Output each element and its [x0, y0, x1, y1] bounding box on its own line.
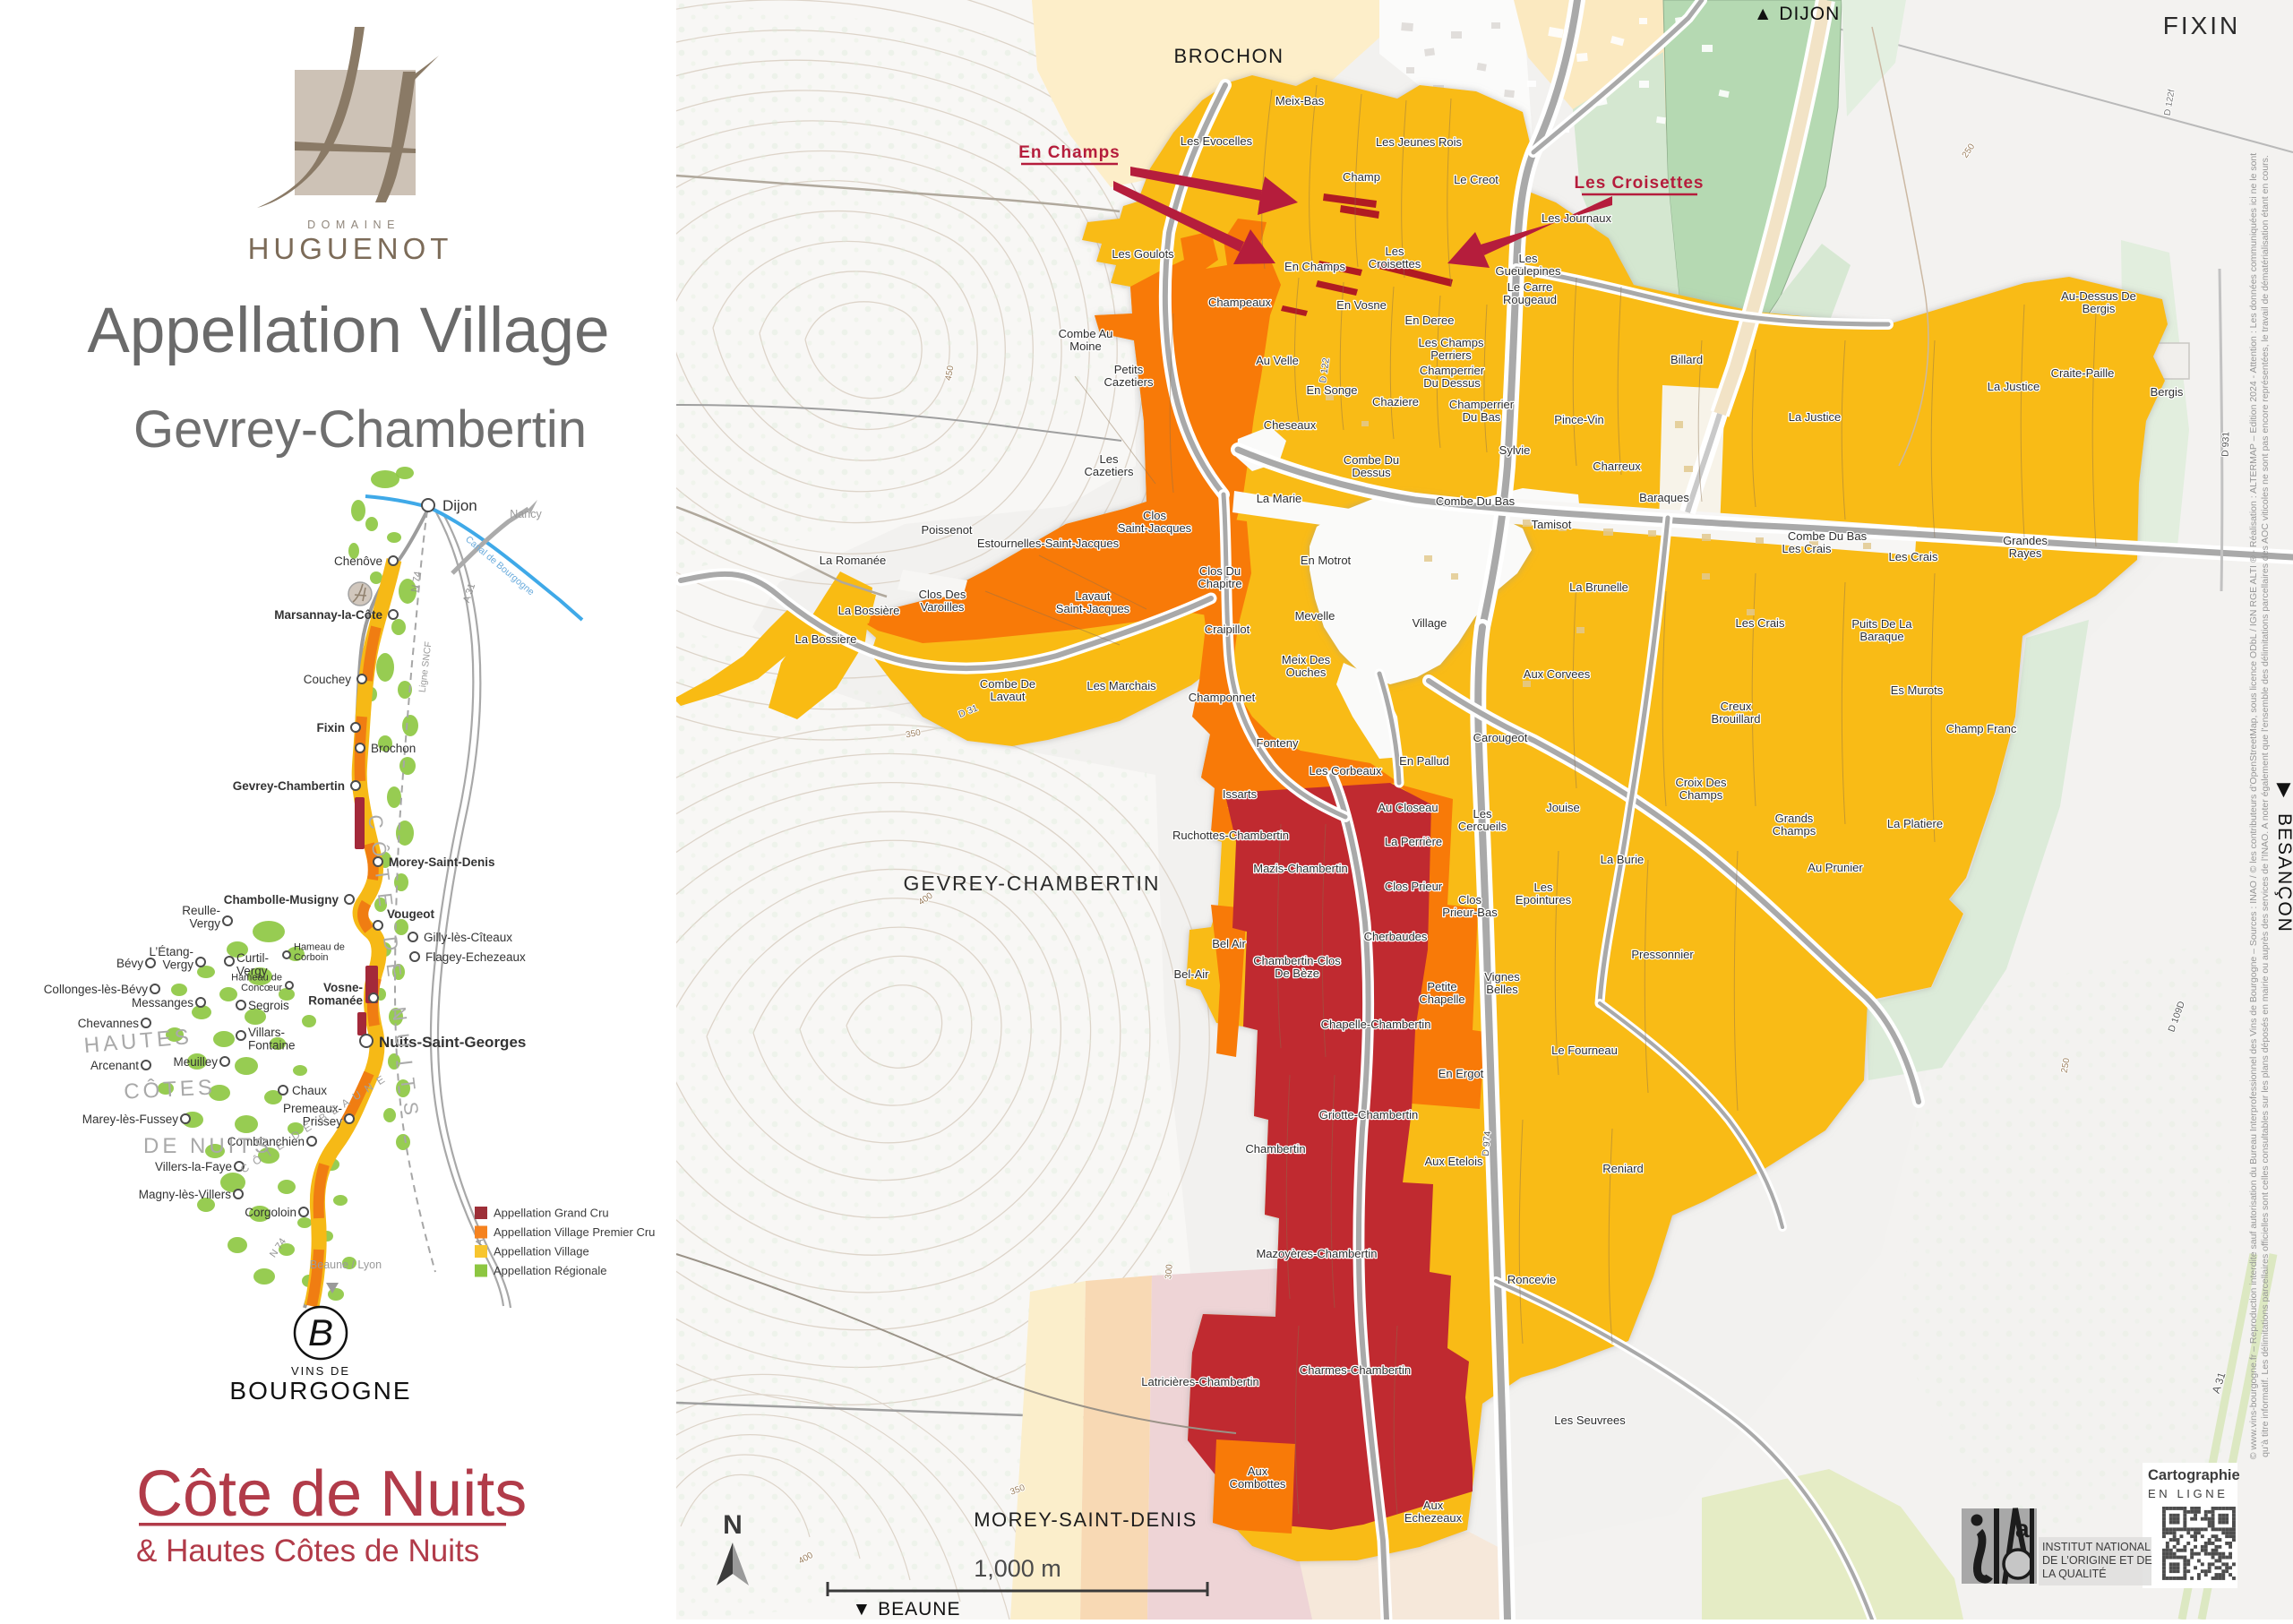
svg-text:Combe Du Bas: Combe Du Bas	[1436, 494, 1516, 508]
svg-text:Arcenant: Arcenant	[90, 1059, 139, 1072]
svg-text:GrandesRayes: GrandesRayes	[2003, 534, 2048, 560]
svg-text:D 974: D 974	[1481, 1130, 1493, 1156]
svg-text:Messanges: Messanges	[132, 996, 193, 1010]
svg-text:INSTITUT NATIONAL: INSTITUT NATIONAL	[2042, 1541, 2151, 1553]
svg-text:Chapelle-Chambertin: Chapelle-Chambertin	[1321, 1018, 1431, 1031]
svg-text:Les Crais: Les Crais	[1782, 542, 1832, 555]
svg-text:Croix DesChamps: Croix DesChamps	[1675, 776, 1727, 802]
svg-text:Carougeot: Carougeot	[1473, 731, 1528, 744]
svg-text:Marsannay-la-Côte: Marsannay-la-Côte	[274, 608, 382, 622]
svg-text:Dijon: Dijon	[442, 497, 477, 514]
svg-text:Couchey: Couchey	[304, 673, 352, 686]
svg-text:▶ BESANÇON: ▶ BESANÇON	[2274, 783, 2293, 933]
svg-text:ChamperrierDu Dessus: ChamperrierDu Dessus	[1420, 364, 1485, 390]
svg-text:VINS DE: VINS DE	[291, 1364, 350, 1378]
svg-text:Chaux: Chaux	[292, 1084, 327, 1097]
svg-text:Mazoyères-Chambertin: Mazoyères-Chambertin	[1256, 1247, 1377, 1260]
svg-text:Le CarreRougeaud: Le CarreRougeaud	[1503, 280, 1557, 306]
svg-text:En Vosne: En Vosne	[1336, 298, 1387, 312]
svg-text:Clos DesVaroilles: Clos DesVaroilles	[919, 588, 966, 614]
svg-text:Poissenot: Poissenot	[921, 523, 972, 537]
svg-text:▼ BEAUNE: ▼ BEAUNE	[853, 1599, 961, 1620]
svg-text:Puits De LaBaraque: Puits De LaBaraque	[1851, 617, 1912, 643]
svg-text:Chambolle-Musigny: Chambolle-Musigny	[224, 893, 339, 907]
svg-text:Cheseaux: Cheseaux	[1264, 418, 1317, 432]
svg-text:En Champs: En Champs	[1018, 143, 1121, 162]
svg-text:Es Murots: Es Murots	[1891, 683, 1944, 697]
svg-text:Fonteny: Fonteny	[1257, 736, 1299, 750]
svg-text:Latricières-Chambertin: Latricières-Chambertin	[1141, 1375, 1259, 1388]
svg-text:300: 300	[1164, 1264, 1174, 1280]
svg-text:Les Marchais: Les Marchais	[1086, 679, 1156, 692]
svg-text:& Hautes Côtes de Nuits: & Hautes Côtes de Nuits	[136, 1534, 479, 1568]
svg-text:Les Evocelles: Les Evocelles	[1181, 134, 1253, 148]
svg-text:La Perrière: La Perrière	[1385, 835, 1442, 848]
svg-text:Marey-lès-Fussey: Marey-lès-Fussey	[82, 1113, 179, 1126]
svg-text:Les Crais: Les Crais	[1736, 616, 1785, 630]
svg-text:Appellation Grand Cru: Appellation Grand Cru	[494, 1207, 609, 1220]
svg-text:Meix DesOuches: Meix DesOuches	[1282, 653, 1331, 679]
svg-text:Le Creot: Le Creot	[1454, 173, 1499, 186]
svg-text:Clos DuChapitre: Clos DuChapitre	[1198, 564, 1241, 590]
svg-text:En Motrot: En Motrot	[1301, 554, 1352, 567]
svg-text:Griotte-Chambertin: Griotte-Chambertin	[1319, 1108, 1419, 1121]
svg-text:La Justice: La Justice	[1988, 380, 2040, 393]
svg-text:En Pallud: En Pallud	[1399, 754, 1449, 768]
svg-text:Baraques: Baraques	[1639, 491, 1689, 504]
svg-text:Chaziere: Chaziere	[1372, 395, 1419, 408]
svg-text:Reniard: Reniard	[1602, 1162, 1644, 1175]
svg-text:© www.vins-bourgogne.fr – Repr: © www.vins-bourgogne.fr – Reproduction i…	[2248, 153, 2259, 1459]
svg-text:Champ Franc: Champ Franc	[1946, 722, 2017, 735]
svg-text:GEVREY-CHAMBERTIN: GEVREY-CHAMBERTIN	[903, 872, 1160, 895]
svg-text:Aux Corvees: Aux Corvees	[1524, 667, 1591, 681]
svg-text:Chenôve: Chenôve	[334, 554, 382, 568]
svg-text:Chevannes: Chevannes	[78, 1017, 140, 1030]
svg-text:La Justice: La Justice	[1789, 410, 1842, 424]
svg-text:Au Prunier: Au Prunier	[1808, 861, 1863, 874]
svg-text:DE L’ORIGINE ET DE: DE L’ORIGINE ET DE	[2042, 1554, 2152, 1567]
svg-text:En Songe: En Songe	[1306, 383, 1357, 397]
svg-text:Flagey-Echezeaux: Flagey-Echezeaux	[425, 950, 526, 964]
svg-text:Champ: Champ	[1343, 170, 1380, 184]
svg-text:Le Fourneau: Le Fourneau	[1551, 1044, 1618, 1057]
svg-text:Bel-Air: Bel-Air	[1173, 967, 1209, 981]
svg-text:BOURGOGNE: BOURGOGNE	[229, 1377, 411, 1405]
svg-text:Appellation Village: Appellation Village	[494, 1245, 589, 1259]
svg-text:La Bossière: La Bossière	[838, 604, 900, 617]
svg-text:Gilly-lès-Cîteaux: Gilly-lès-Cîteaux	[424, 931, 512, 944]
svg-text:La Brunelle: La Brunelle	[1569, 580, 1628, 594]
svg-text:Sylvie: Sylvie	[1499, 443, 1531, 457]
svg-text:Côte de Nuits: Côte de Nuits	[136, 1458, 527, 1530]
svg-text:Segrois: Segrois	[248, 999, 289, 1012]
svg-text:Pressonnier: Pressonnier	[1631, 948, 1694, 961]
svg-text:a: a	[2015, 1515, 2030, 1542]
svg-text:La Platiere: La Platiere	[1887, 817, 1943, 830]
svg-text:Au Closeau: Au Closeau	[1378, 801, 1438, 814]
svg-text:Fixin: Fixin	[316, 721, 345, 735]
svg-text:Nancy: Nancy	[510, 508, 542, 520]
svg-text:Champeaux: Champeaux	[1208, 296, 1272, 309]
svg-text:Les Journaux: Les Journaux	[1542, 211, 1612, 225]
svg-text:B: B	[308, 1311, 333, 1353]
svg-text:GrandsChamps: GrandsChamps	[1773, 812, 1816, 838]
svg-text:Magny-lès-Villers: Magny-lès-Villers	[139, 1188, 232, 1201]
svg-text:N: N	[723, 1510, 743, 1540]
svg-text:MOREY-SAINT-DENIS: MOREY-SAINT-DENIS	[974, 1508, 1198, 1531]
svg-text:Gevrey-Chambertin: Gevrey-Chambertin	[233, 779, 345, 793]
svg-text:En Champs: En Champs	[1284, 260, 1345, 273]
svg-text:La Marie: La Marie	[1257, 492, 1302, 505]
svg-text:Villers-la-Faye: Villers-la-Faye	[155, 1160, 232, 1173]
svg-text:Billard: Billard	[1670, 353, 1703, 366]
svg-text:Au Velle: Au Velle	[1256, 354, 1299, 367]
svg-text:Les Jeunes Rois: Les Jeunes Rois	[1376, 135, 1463, 149]
svg-text:Les Seuvrees: Les Seuvrees	[1554, 1413, 1626, 1427]
svg-text:En Ergot: En Ergot	[1438, 1067, 1484, 1080]
svg-text:Charreux: Charreux	[1593, 460, 1641, 473]
svg-text:Corgoloin: Corgoloin	[245, 1206, 296, 1219]
svg-text:Roncevie: Roncevie	[1507, 1273, 1556, 1286]
svg-text:Bergis: Bergis	[2151, 385, 2184, 399]
svg-text:Les Corbeaux: Les Corbeaux	[1310, 764, 1382, 778]
svg-text:1,000 m: 1,000 m	[974, 1555, 1061, 1582]
svg-text:DOMAINE: DOMAINE	[307, 219, 400, 231]
svg-text:Meuilley: Meuilley	[173, 1055, 218, 1069]
svg-text:qu’à titre informatif. Les dél: qu’à titre informatif. Les délimitations…	[2260, 155, 2271, 1457]
svg-text:Estournelles-Saint-Jacques: Estournelles-Saint-Jacques	[977, 537, 1120, 550]
svg-text:Issarts: Issarts	[1223, 787, 1258, 801]
svg-text:En Deree: En Deree	[1405, 314, 1455, 327]
svg-text:Clos Prieur: Clos Prieur	[1385, 880, 1443, 893]
svg-text:Craipillot: Craipillot	[1205, 623, 1250, 636]
svg-text:La Bossiere: La Bossiere	[795, 632, 857, 646]
svg-text:HUGUENOT: HUGUENOT	[248, 232, 453, 265]
svg-text:Bévy: Bévy	[116, 957, 143, 970]
svg-text:Appellation Régionale: Appellation Régionale	[494, 1264, 606, 1277]
svg-text:Craite-Paille: Craite-Paille	[2051, 366, 2115, 380]
svg-text:Charmes-Chambertin: Charmes-Chambertin	[1300, 1363, 1411, 1377]
svg-text:Morey-Saint-Denis: Morey-Saint-Denis	[389, 855, 495, 869]
svg-text:Jouise: Jouise	[1546, 801, 1580, 814]
svg-text:Meix-Bas: Meix-Bas	[1275, 94, 1325, 107]
svg-text:Collonges-lès-Bévy: Collonges-lès-Bévy	[44, 983, 149, 996]
svg-text:▲ DIJON: ▲ DIJON	[1754, 4, 1841, 24]
svg-text:VignesBelles: VignesBelles	[1484, 970, 1520, 996]
svg-text:Cartographie: Cartographie	[2148, 1467, 2240, 1483]
svg-text:Bel Air: Bel Air	[1212, 937, 1246, 950]
svg-text:Village: Village	[1413, 616, 1447, 630]
svg-text:EN LIGNE: EN LIGNE	[2148, 1487, 2228, 1500]
svg-text:Les Crais: Les Crais	[1889, 550, 1938, 563]
svg-text:D 931: D 931	[2220, 432, 2232, 458]
svg-text:FIXIN: FIXIN	[2163, 12, 2241, 39]
svg-text:Pince-Vin: Pince-Vin	[1554, 413, 1603, 426]
svg-text:Les Croisettes: Les Croisettes	[1575, 174, 1705, 193]
svg-text:Champonnet: Champonnet	[1189, 691, 1256, 704]
svg-text:CÔTES: CÔTES	[124, 1074, 217, 1104]
svg-text:Aux Etelois: Aux Etelois	[1424, 1155, 1483, 1168]
svg-text:LA QUALITÉ: LA QUALITÉ	[2042, 1567, 2107, 1580]
svg-text:Appellation Village: Appellation Village	[88, 296, 610, 366]
svg-text:Combe Du Bas: Combe Du Bas	[1788, 529, 1868, 543]
svg-text:BROCHON: BROCHON	[1174, 45, 1284, 67]
svg-text:Beaune / Lyon: Beaune / Lyon	[310, 1259, 382, 1271]
svg-text:La Burie: La Burie	[1601, 853, 1644, 866]
svg-text:Mazis-Chambertin: Mazis-Chambertin	[1253, 862, 1347, 875]
svg-text:La Romanée: La Romanée	[820, 554, 886, 567]
svg-text:Chambertin: Chambertin	[1245, 1142, 1305, 1156]
svg-text:Les Goulots: Les Goulots	[1112, 247, 1174, 261]
svg-text:Tamisot: Tamisot	[1532, 518, 1572, 531]
svg-text:Cherbaudes: Cherbaudes	[1364, 930, 1428, 943]
svg-text:Ruchottes-Chambertin: Ruchottes-Chambertin	[1172, 829, 1289, 842]
svg-text:Mevelle: Mevelle	[1295, 609, 1335, 623]
svg-text:Brochon: Brochon	[371, 742, 416, 755]
svg-text:Appellation Village Premier Cr: Appellation Village Premier Cru	[494, 1225, 655, 1239]
svg-text:Gevrey-Chambertin: Gevrey-Chambertin	[133, 400, 587, 459]
